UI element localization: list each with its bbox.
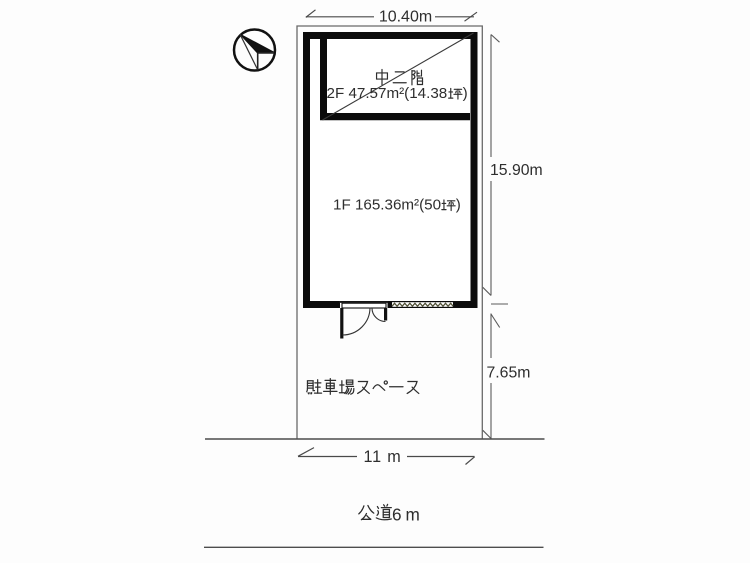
svg-text:11 m: 11 m	[364, 448, 402, 466]
svg-text:2F 47.57m²(14.38: 2F 47.57m²(14.38	[327, 85, 448, 102]
svg-text:): )	[463, 85, 468, 102]
svg-text:6m: 6m	[392, 505, 424, 525]
svg-text:10.40m: 10.40m	[379, 9, 432, 26]
svg-text:15.90m: 15.90m	[490, 162, 543, 179]
svg-text:1F 165.36m²(50: 1F 165.36m²(50	[333, 197, 441, 214]
svg-text:7.65m: 7.65m	[487, 364, 531, 381]
svg-text:): )	[456, 197, 461, 214]
